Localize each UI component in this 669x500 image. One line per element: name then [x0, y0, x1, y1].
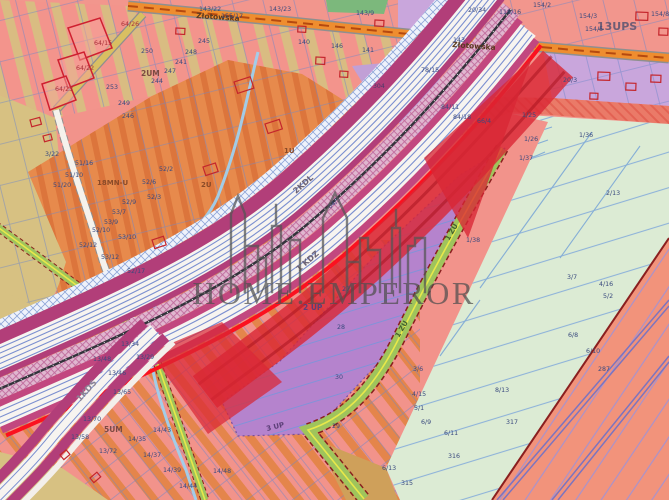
map-label: 287: [598, 366, 610, 373]
map-label: 52/17: [127, 268, 145, 275]
map-label: 246: [122, 113, 134, 120]
map-label: 241: [175, 59, 187, 66]
map-label: 140: [298, 39, 310, 46]
map-label: 6/11: [444, 430, 458, 437]
watermark-brand: HOME.EMPEROR: [192, 275, 475, 311]
map-label: 52/2: [159, 166, 173, 173]
map-label: 52/6: [142, 179, 156, 186]
map-label: 244: [151, 78, 163, 85]
map-label: 14/44: [179, 483, 197, 490]
map-label: 317: [506, 419, 518, 426]
map-label: 1U: [284, 147, 295, 155]
map-label: 29: [332, 423, 340, 430]
map-label: 4/15: [412, 391, 426, 398]
map-label: 53/10: [118, 234, 136, 241]
map-label: 1/25: [522, 112, 536, 119]
map-label: 13/46: [108, 370, 126, 377]
map-label: 13/34: [121, 341, 139, 348]
map-label: 84/11: [441, 104, 459, 111]
map-label: 13/65: [113, 389, 131, 396]
map-label: 249: [118, 100, 130, 107]
map-label: 14/37: [143, 452, 161, 459]
map-label: 14/43: [153, 427, 171, 434]
map-label: 52/3: [147, 194, 161, 201]
zoning-map-viewport[interactable]: 13UPS2UM5UM18MN-U1U2U2 UP3 UP3042KDL1 KD…: [0, 0, 669, 500]
map-label: 146: [331, 43, 343, 50]
zoning-map-canvas[interactable]: 13UPS2UM5UM18MN-U1U2U2 UP3 UP3042KDL1 KD…: [0, 0, 669, 500]
map-label: 64/22: [76, 65, 94, 72]
map-label: 315: [401, 480, 413, 487]
map-label: 13/58: [71, 434, 89, 441]
map-label: 30: [335, 374, 343, 381]
map-label: 3/22: [45, 151, 59, 158]
map-label: 154/8: [651, 11, 669, 18]
map-label: 316: [448, 453, 460, 460]
map-label: 13/72: [99, 448, 117, 455]
map-label: 4/16: [599, 281, 613, 288]
map-label: 250: [141, 48, 153, 55]
map-label: 53/12: [101, 254, 119, 261]
map-label: 141: [362, 47, 374, 54]
map-label: 143: [453, 37, 465, 44]
map-label: 6/9: [421, 419, 431, 426]
map-label: 118/16: [499, 9, 521, 16]
map-label: 154/2: [533, 2, 551, 9]
map-label: 64/26: [121, 21, 139, 28]
map-label: 20/3: [563, 77, 577, 84]
map-label: 51/20: [53, 182, 71, 189]
map-label: 8/13: [495, 387, 509, 394]
map-label: 51/10: [65, 172, 83, 179]
map-label: 6/8: [568, 332, 578, 339]
map-label: 14/35: [128, 436, 146, 443]
map-label: 84/18: [453, 114, 471, 121]
map-label: 5/1: [414, 405, 424, 412]
map-label: 53/7: [112, 209, 126, 216]
map-label: 14/39: [163, 467, 181, 474]
map-label: 154/3: [579, 13, 597, 20]
map-label: 6/13: [382, 465, 396, 472]
map-label: 143/9: [356, 10, 374, 17]
map-label: 51/16: [75, 160, 93, 167]
map-label: 155/17: [221, 13, 243, 20]
map-label: 143/23: [269, 6, 291, 13]
map-label: 1/38: [466, 237, 480, 244]
map-label: 52/12: [79, 242, 97, 249]
map-label: 13/48: [93, 356, 111, 363]
map-label: 64/23: [55, 86, 73, 93]
map-label: 2UM: [141, 69, 160, 78]
map-label: 64/15: [94, 40, 112, 47]
map-label: 154/5: [585, 26, 603, 33]
map-label: 52/9: [122, 199, 136, 206]
map-label: 52/10: [92, 227, 110, 234]
map-label: 5UM: [104, 425, 123, 434]
map-label: 2/13: [606, 190, 620, 197]
map-label: 1/37: [519, 155, 533, 162]
map-label: 13/29: [136, 354, 154, 361]
map-label: 245: [198, 38, 210, 45]
map-label: 20/34: [468, 7, 486, 14]
map-label: 78/15: [421, 67, 439, 74]
map-label: 143/22: [199, 6, 221, 13]
map-label: 5/2: [603, 293, 613, 300]
map-label: 248: [185, 49, 197, 56]
map-label: 2U: [201, 181, 212, 189]
map-label: 1/36: [579, 132, 593, 139]
map-label: 1/26: [524, 136, 538, 143]
map-label: 66/4: [477, 118, 491, 125]
map-label: 13/70: [83, 416, 101, 423]
map-label: 304: [373, 83, 385, 90]
map-label: 247: [164, 68, 176, 75]
map-label: 28: [337, 324, 345, 331]
map-label: 253: [106, 84, 118, 91]
map-label: 18MN-U: [97, 179, 128, 187]
map-label: 6/10: [586, 348, 600, 355]
map-label: 53/9: [104, 219, 118, 226]
map-label: 14/48: [213, 468, 231, 475]
map-label: 3/7: [567, 274, 577, 281]
map-label: 3/6: [413, 366, 423, 373]
